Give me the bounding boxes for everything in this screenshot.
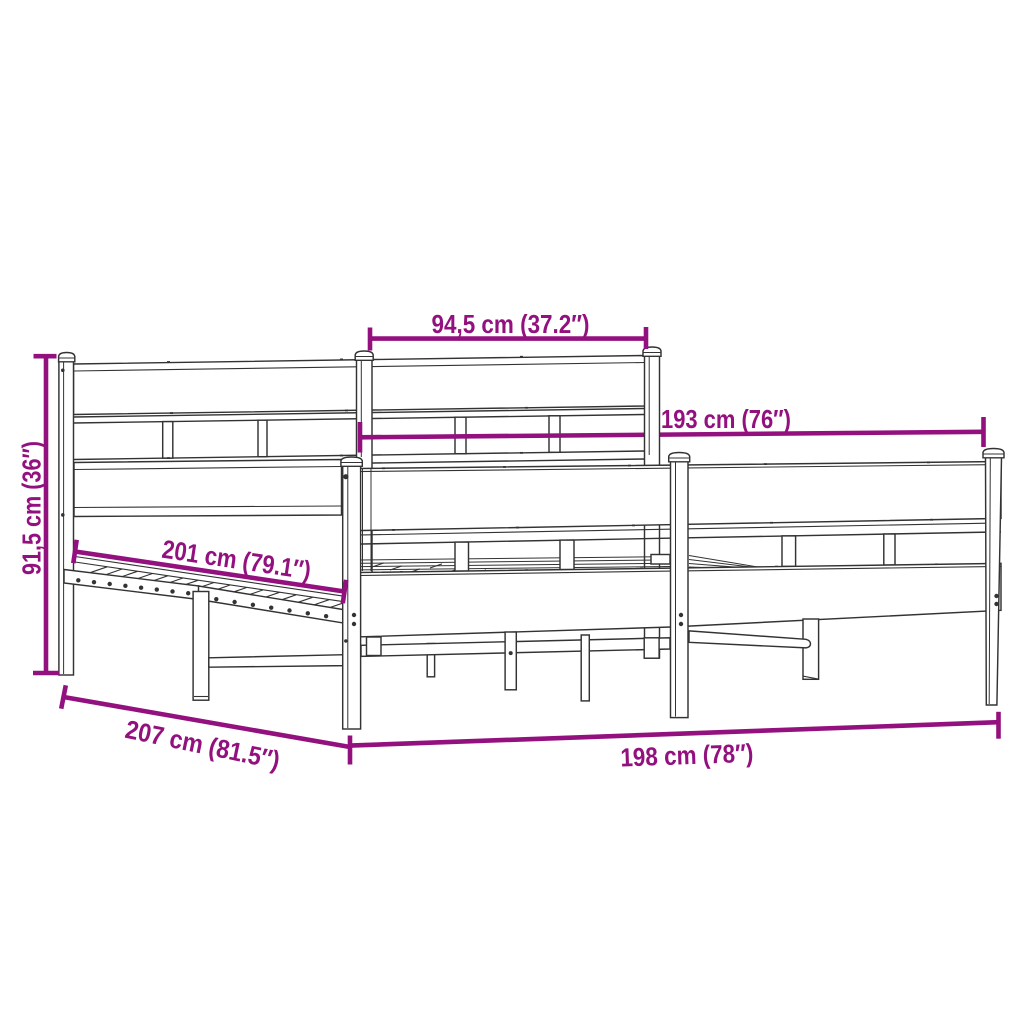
svg-text:91,5 cm (36″): 91,5 cm (36″) — [17, 441, 47, 575]
svg-text:198 cm (78″): 198 cm (78″) — [620, 738, 754, 773]
svg-text:193 cm (76″): 193 cm (76″) — [661, 404, 791, 434]
svg-text:94,5 cm (37.2″): 94,5 cm (37.2″) — [432, 309, 590, 339]
